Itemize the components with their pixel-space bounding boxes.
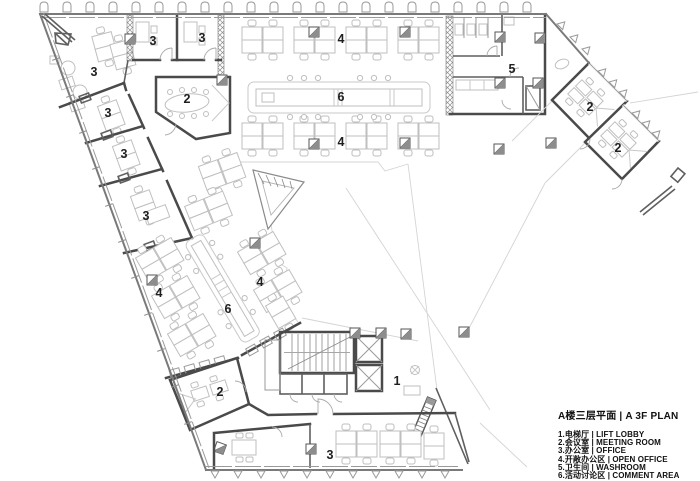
room-label-office: 3 [121, 147, 128, 161]
legend-item-comment-area: 6.活动讨论区 | COMMENT AREA [558, 472, 698, 480]
room-label-office: 3 [105, 106, 112, 120]
room-label-office: 3 [199, 31, 206, 45]
room-label-office: 3 [143, 209, 150, 223]
room-label-lift-lobby: 1 [394, 374, 401, 388]
triangle-stair [253, 170, 304, 229]
room-label-office: 3 [150, 34, 157, 48]
meeting-room-wing [170, 358, 249, 430]
room-label-meeting: 2 [615, 141, 622, 155]
room-label-meeting: 2 [587, 100, 594, 114]
room-label-comment-area: 6 [225, 302, 232, 316]
room-label-meeting: 2 [184, 92, 191, 106]
hatched-wall [218, 15, 224, 77]
room-label-open-office: 4 [156, 286, 163, 300]
room-label-meeting: 2 [217, 385, 224, 399]
plant [554, 57, 570, 70]
wall-fragment [640, 186, 675, 215]
corridor-desks [182, 146, 248, 237]
room-label-open-office: 4 [338, 135, 345, 149]
room-label-office: 3 [327, 448, 334, 462]
meeting-room-top [156, 77, 230, 139]
offices-top [124, 15, 224, 83]
room-label-washroom: 5 [509, 62, 516, 76]
legend-title: A楼三层平面 | A 3F PLAN [558, 407, 698, 422]
floor-plan-canvas: 3 3 3 3 3 3 3 2 2 2 2 4 4 4 4 6 6 5 1 A楼… [0, 0, 700, 481]
room-label-open-office: 4 [338, 32, 345, 46]
legend: A楼三层平面 | A 3F PLAN 1.电梯厅 | LIFT LOBBY 2.… [558, 407, 698, 480]
washroom-block [446, 15, 545, 115]
room-label-office: 3 [91, 65, 98, 79]
room-label-comment-area: 6 [338, 90, 345, 104]
room-label-open-office: 4 [257, 275, 264, 289]
